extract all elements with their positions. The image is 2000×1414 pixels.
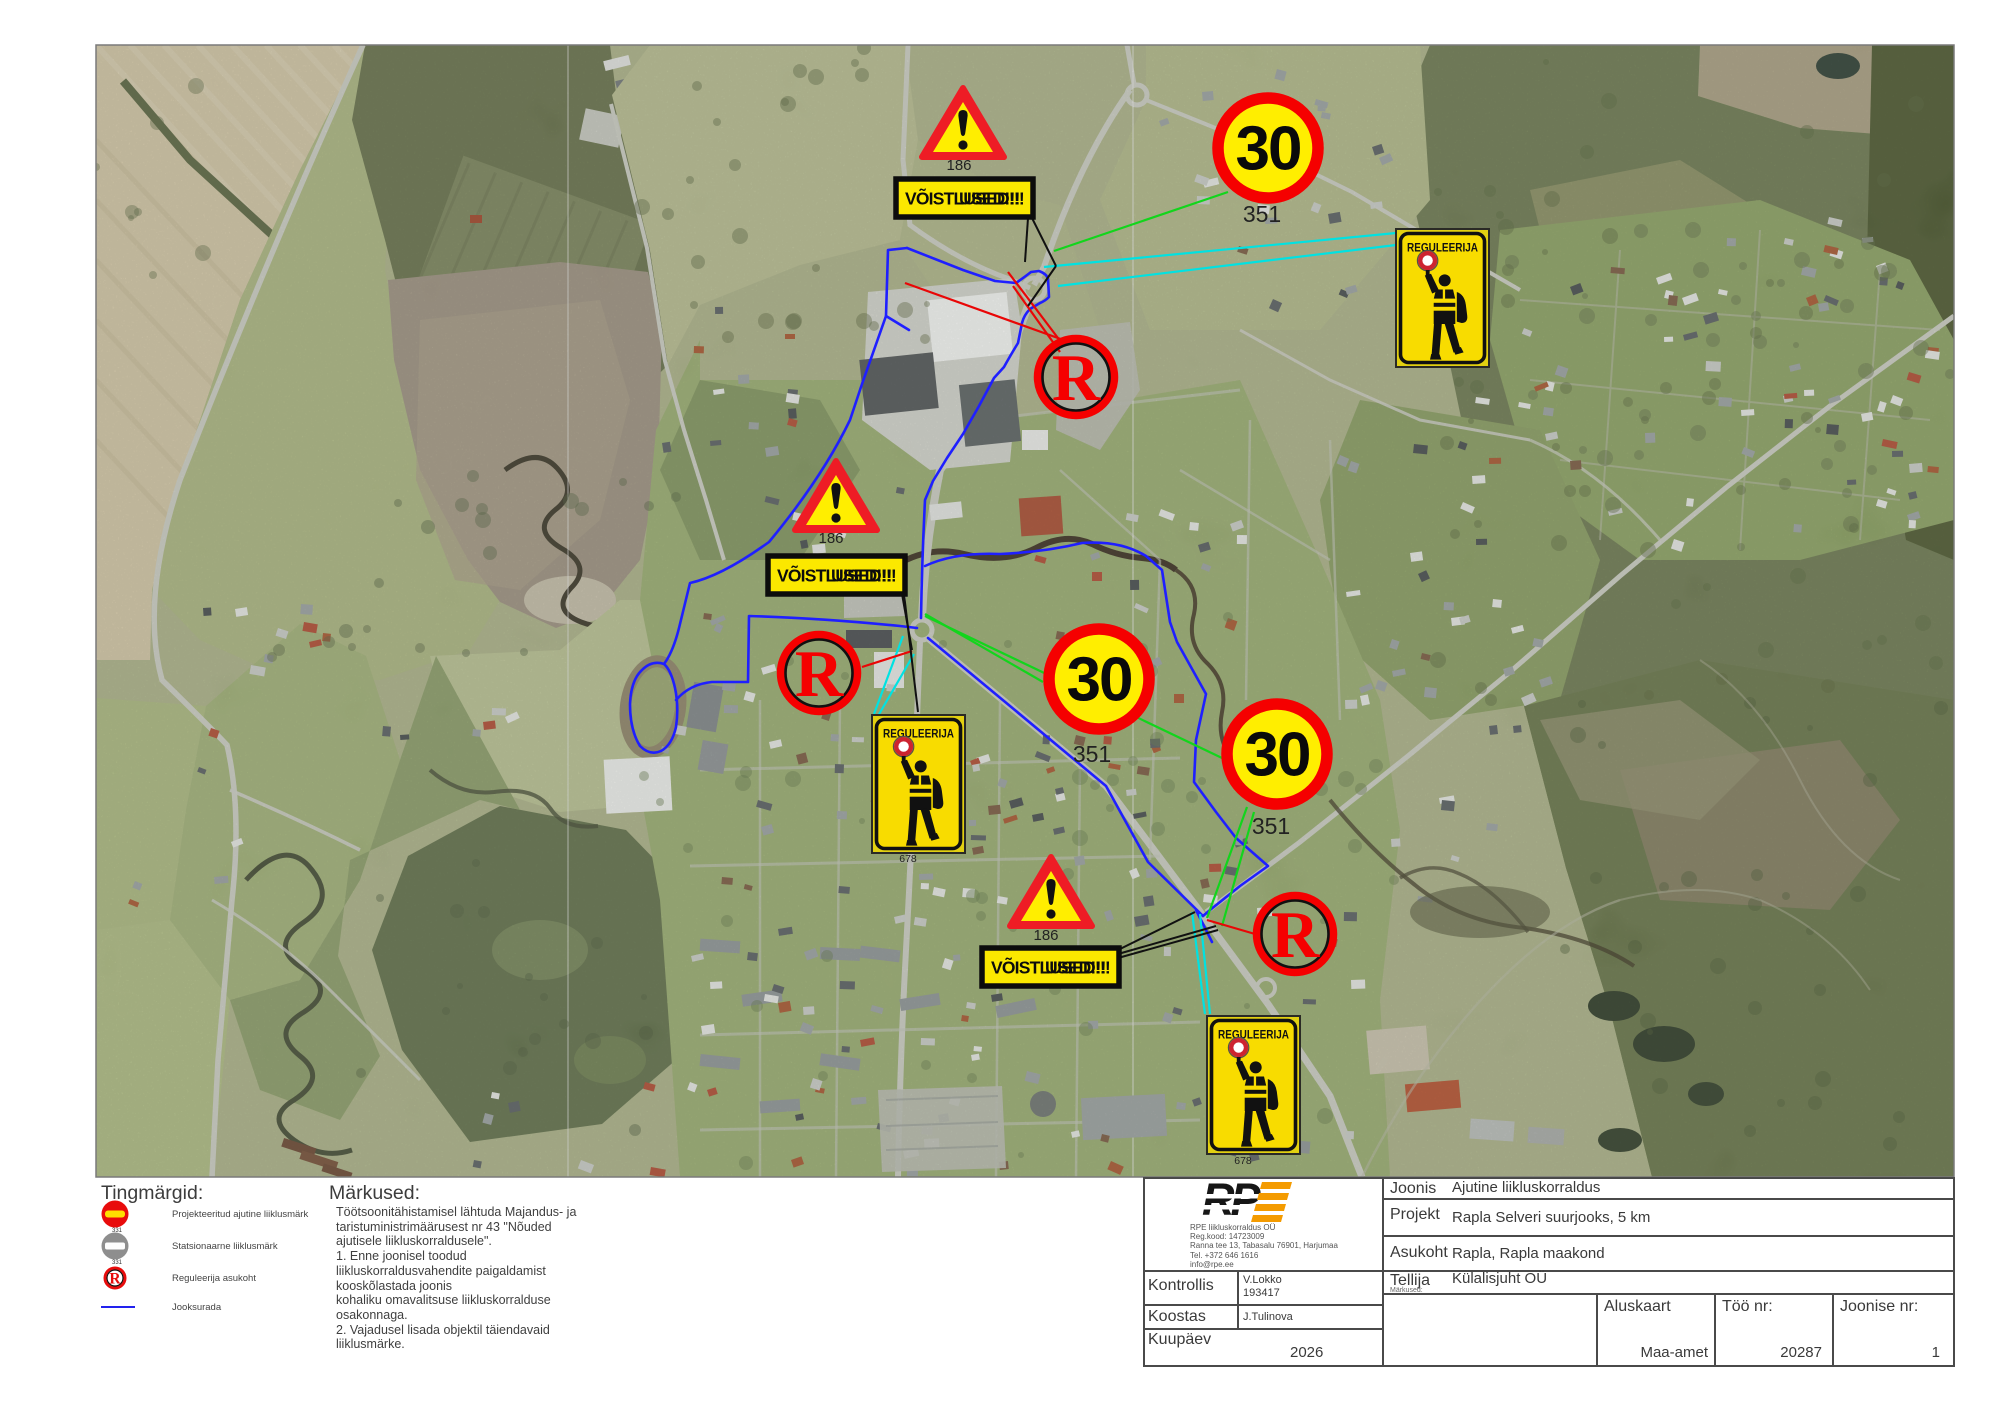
- svg-text:R: R: [109, 1271, 121, 1288]
- svg-text:186: 186: [1033, 927, 1058, 944]
- svg-text:186: 186: [946, 157, 971, 174]
- svg-text:678: 678: [899, 853, 917, 865]
- svg-text:186: 186: [818, 530, 843, 547]
- svg-text:678: 678: [1234, 1155, 1252, 1167]
- svg-text:351: 351: [1243, 201, 1281, 227]
- svg-text:351: 351: [1252, 813, 1290, 839]
- svg-text:351: 351: [1073, 741, 1111, 767]
